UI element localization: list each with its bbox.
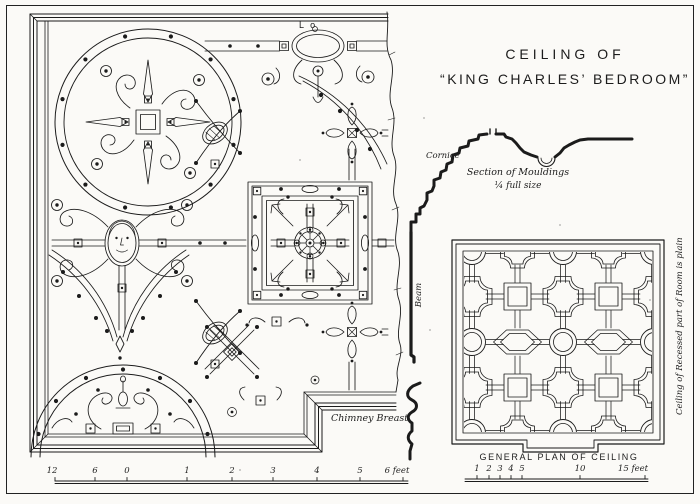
general-plan-caption: GENERAL PLAN OF CEILING <box>452 452 666 462</box>
scale-tick-label: 4 <box>508 464 513 474</box>
plate-title-line2: “KING CHARLES’ BEDROOM” <box>433 71 697 87</box>
scale-tick-label: 3 <box>270 466 275 476</box>
general-plan-drawing <box>452 234 674 452</box>
section-caption-line1: Section of Mouldings <box>433 167 603 178</box>
scale-tick-label: 4 <box>314 466 319 476</box>
section-caption-line2: ¼ full size <box>433 181 603 191</box>
scale-tick-label: 12 <box>47 466 58 476</box>
plan-reference-letter: L o <box>299 20 317 30</box>
chimney-breast-label: Chimney Breast <box>331 413 408 424</box>
scale-tick-label: 15 feet <box>618 464 648 474</box>
scale-tick-label: 1 <box>474 464 479 474</box>
recessed-ceiling-note: Ceiling of Recessed part of Room is plai… <box>675 243 685 415</box>
scale-tick-label: 6 feet <box>385 466 410 476</box>
plate-title-line1: CEILING OF <box>433 46 697 62</box>
scale-tick-label: 3 <box>497 464 502 474</box>
scale-tick-label: 0 <box>124 466 129 476</box>
scale-bars <box>55 476 648 484</box>
scale-tick-label: 2 <box>486 464 491 474</box>
scale-tick-label: 2 <box>229 466 234 476</box>
cornice-label: Cornice <box>426 151 460 161</box>
scale-tick-label: 5 <box>357 466 362 476</box>
main-plan-drawing <box>30 12 403 457</box>
scale-tick-label: 10 <box>575 464 586 474</box>
scale-tick-label: 6 <box>92 466 97 476</box>
scale-tick-label: 1 <box>184 466 189 476</box>
beam-label: Beam <box>414 270 424 320</box>
scale-tick-label: 5 <box>519 464 524 474</box>
engraved-plate: CEILING OF “KING CHARLES’ BEDROOM” Corni… <box>0 0 700 504</box>
